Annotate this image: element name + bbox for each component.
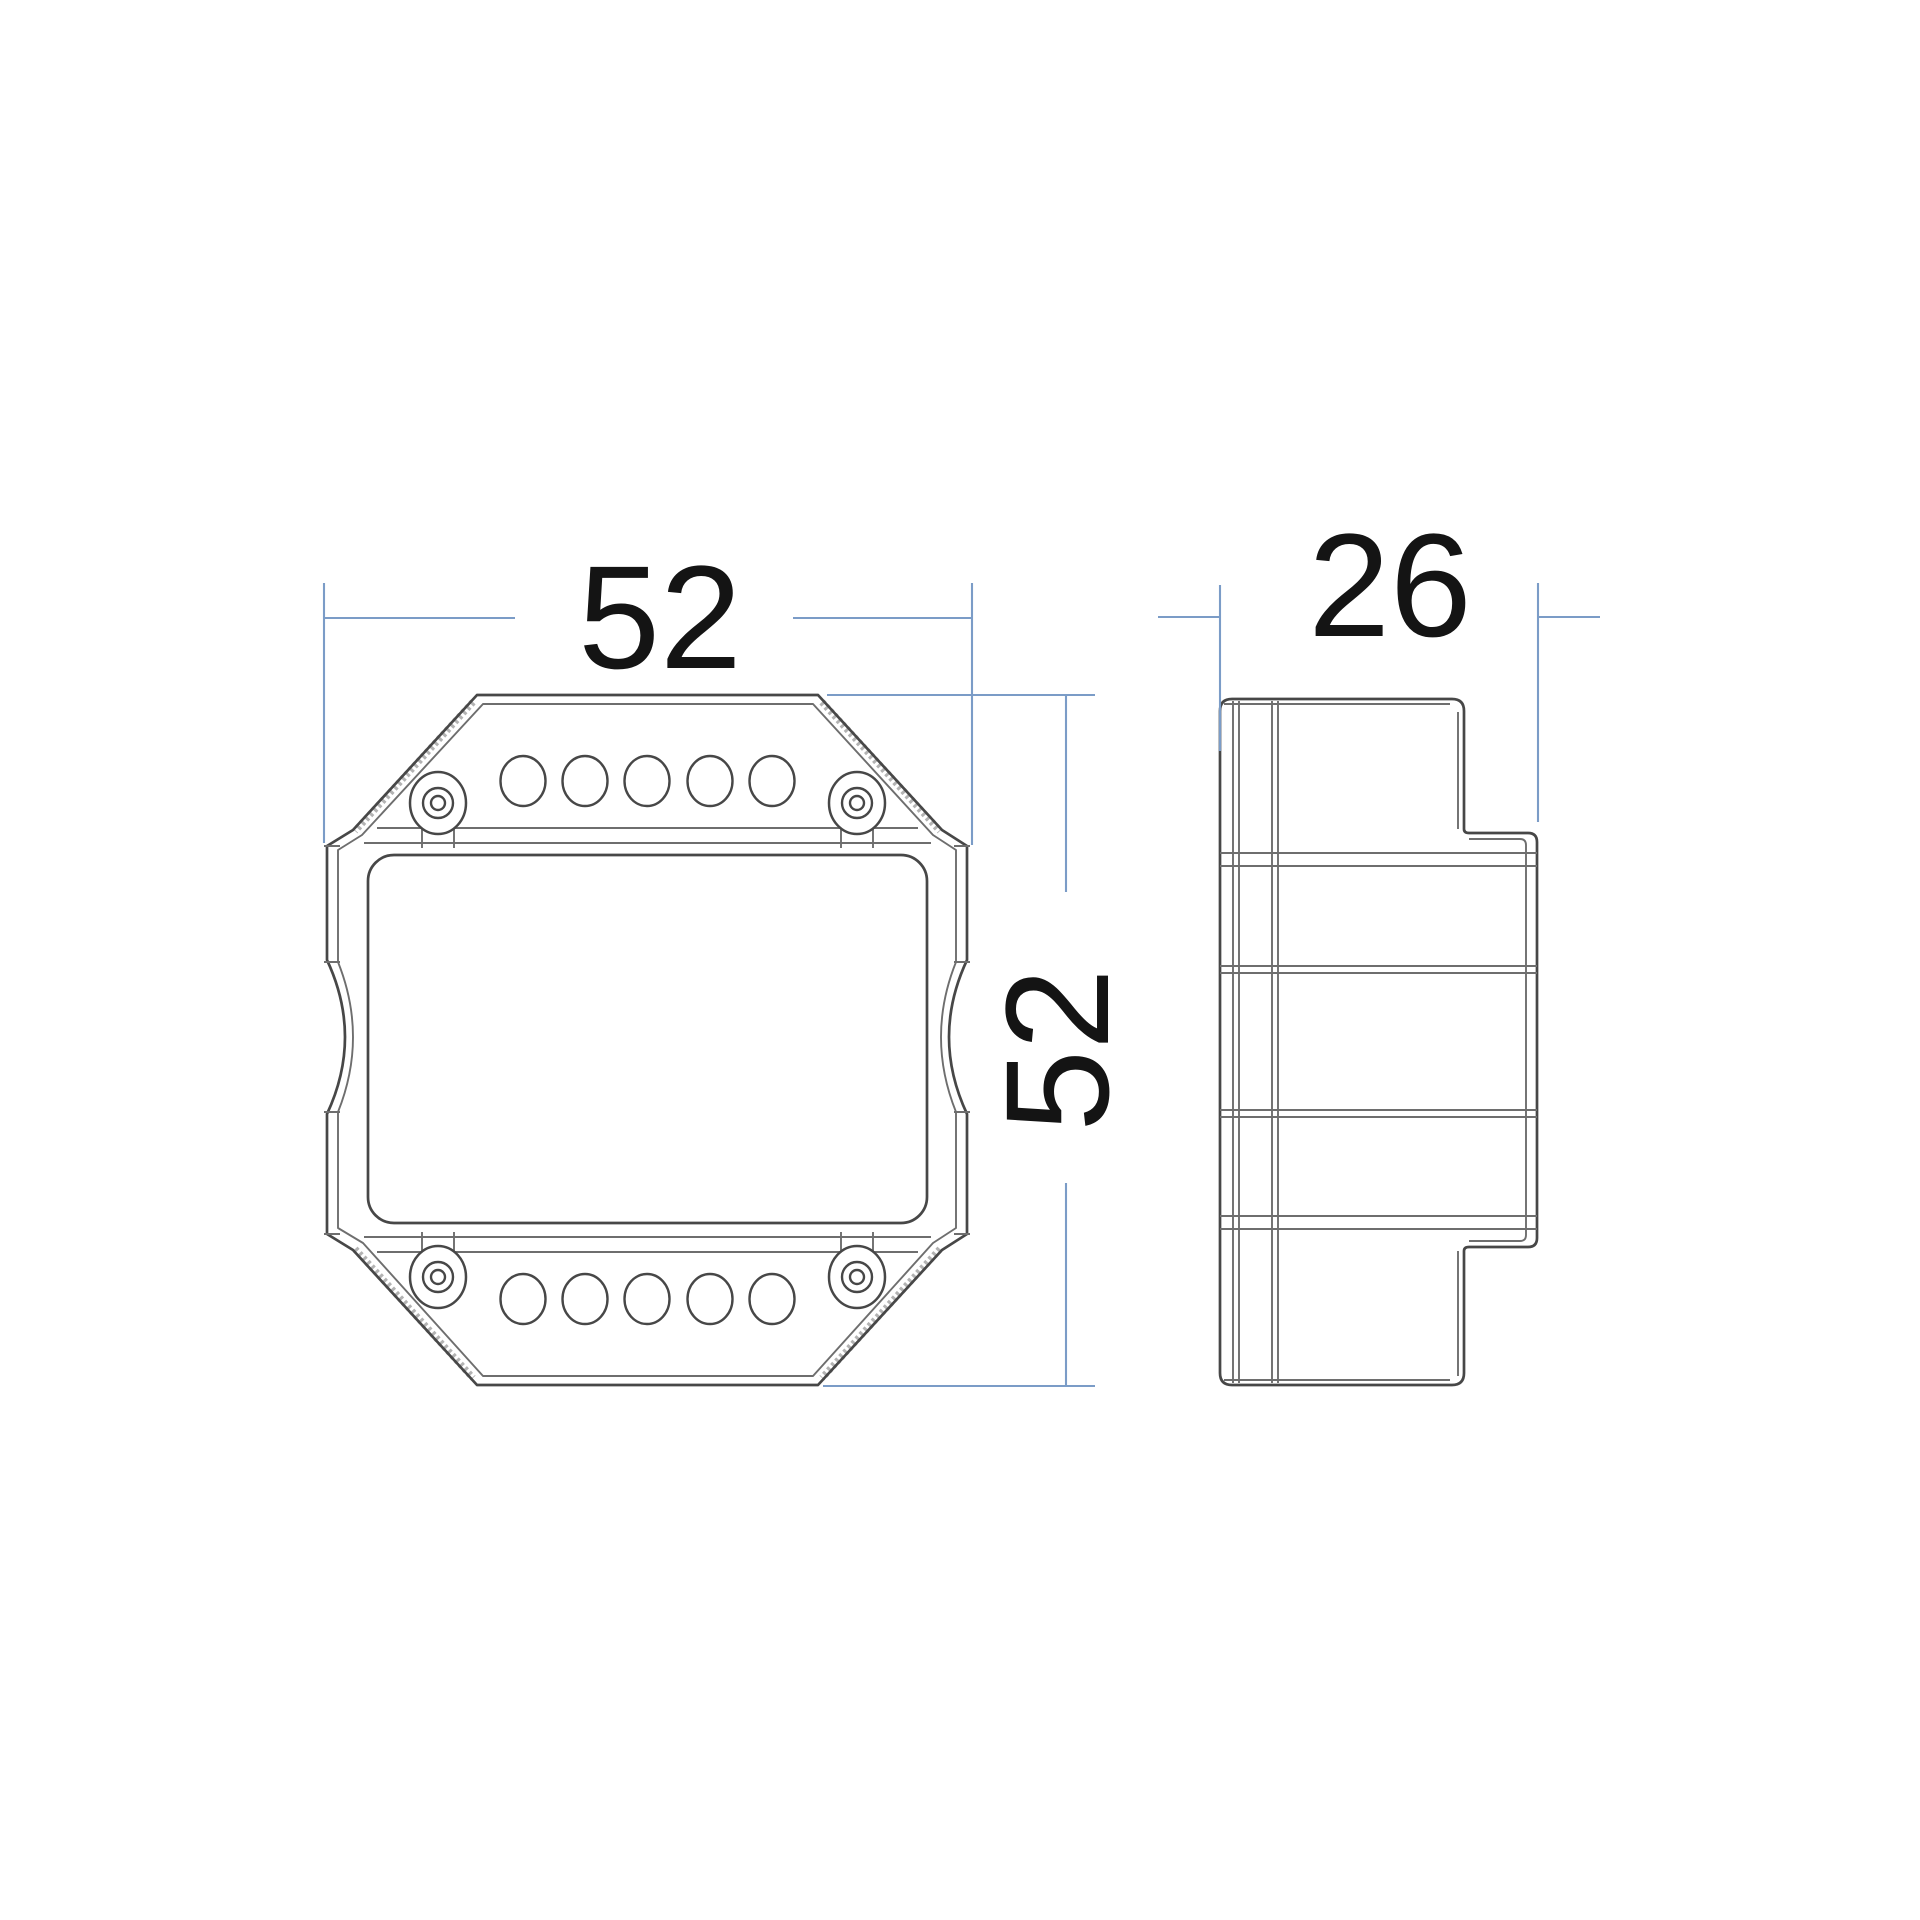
dimension-label-front-width: 52 bbox=[578, 536, 742, 700]
terminal-hole bbox=[501, 1274, 546, 1324]
screw-post-top-left bbox=[410, 772, 466, 834]
side-detail-lines bbox=[1224, 701, 1526, 1383]
terminal-hole bbox=[625, 756, 670, 806]
side-section-lines bbox=[1220, 853, 1537, 1229]
terminal-hole bbox=[625, 1274, 670, 1324]
side-view bbox=[1220, 699, 1537, 1385]
dimension-side-depth: 26 bbox=[1158, 504, 1600, 822]
screw-post-tabs bbox=[422, 824, 873, 1256]
terminal-hole bbox=[501, 756, 546, 806]
terminal-hole bbox=[563, 1274, 608, 1324]
terminal-hole bbox=[563, 756, 608, 806]
compartment-lines bbox=[364, 828, 931, 1252]
dimension-label-side-depth: 26 bbox=[1308, 504, 1472, 668]
terminal-hole bbox=[750, 1274, 795, 1324]
screw-post-bottom-left bbox=[410, 1246, 466, 1308]
terminal-hole bbox=[688, 756, 733, 806]
technical-drawing: 52 52 26 bbox=[0, 0, 1920, 1920]
front-view bbox=[324, 695, 970, 1385]
screw-post-top-right bbox=[829, 772, 885, 834]
side-body-outline bbox=[1220, 699, 1537, 1385]
edge-joint-ticks bbox=[324, 846, 970, 1234]
terminal-holes-bottom bbox=[501, 1274, 795, 1324]
face-plate bbox=[368, 855, 927, 1223]
terminal-hole bbox=[688, 1274, 733, 1324]
technical-drawing-page: 52 52 26 bbox=[0, 0, 1920, 1920]
screw-post-bottom-right bbox=[829, 1246, 885, 1308]
dimension-label-front-height: 52 bbox=[976, 968, 1140, 1132]
terminal-hole bbox=[750, 756, 795, 806]
terminal-holes-top bbox=[501, 756, 795, 806]
